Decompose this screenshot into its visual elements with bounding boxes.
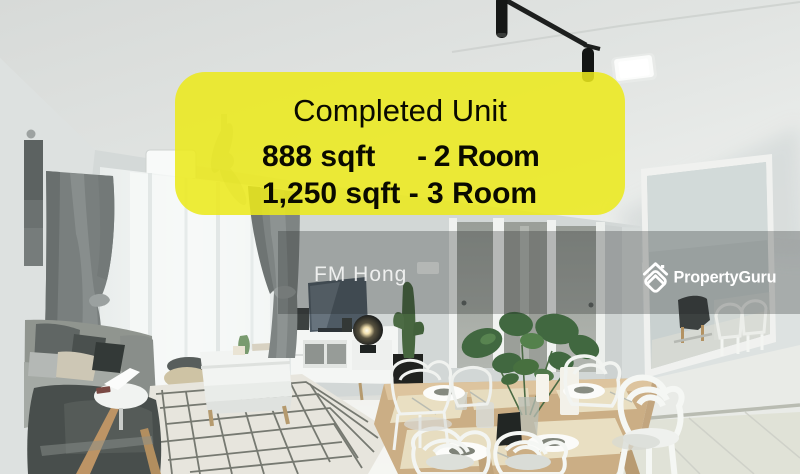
svg-text:PropertyGuru: PropertyGuru: [674, 269, 777, 287]
